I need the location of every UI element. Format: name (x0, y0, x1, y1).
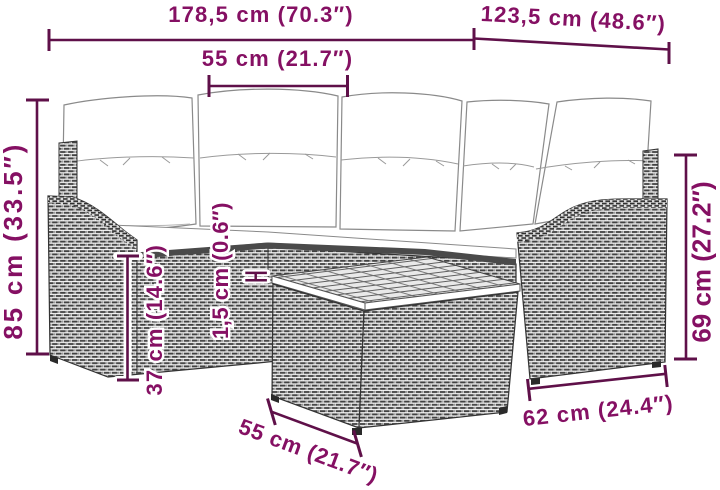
svg-text:55 cm (21.7″): 55 cm (21.7″) (202, 46, 353, 71)
svg-text:178,5 cm (70.3″): 178,5 cm (70.3″) (168, 2, 353, 27)
svg-text:1,5 cm (0.6″): 1,5 cm (0.6″) (208, 202, 233, 339)
svg-text:37 cm (14.6″): 37 cm (14.6″) (142, 244, 167, 395)
svg-text:85 cm (33.5″): 85 cm (33.5″) (0, 142, 28, 340)
svg-text:69 cm (27.2″): 69 cm (27.2″) (687, 181, 717, 342)
